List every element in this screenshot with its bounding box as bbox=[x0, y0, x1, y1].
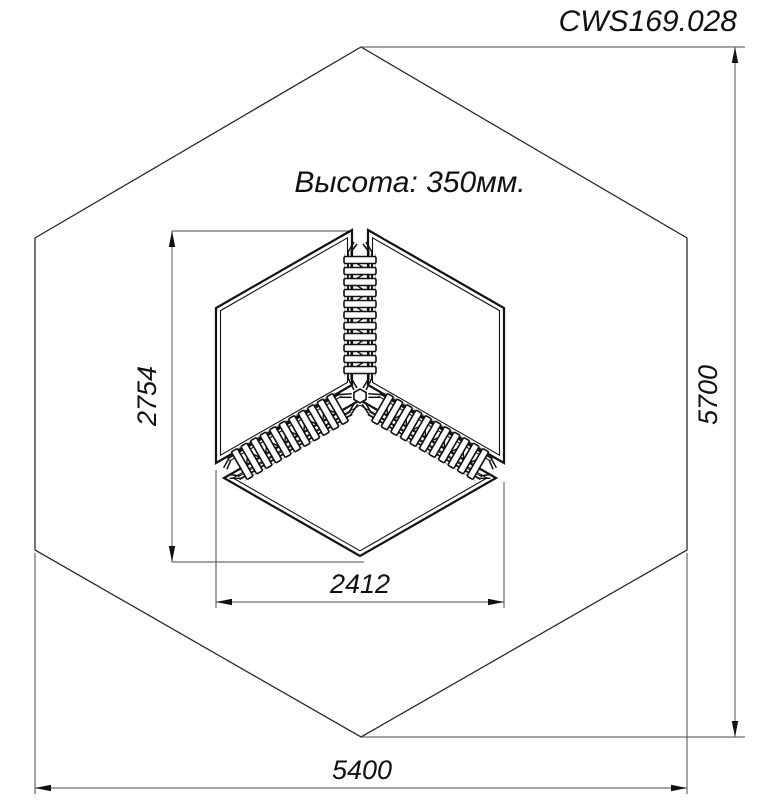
drawing-title: CWS169.028 bbox=[559, 5, 738, 38]
climbing-structure bbox=[216, 230, 504, 556]
panel-inner-edge bbox=[233, 405, 487, 551]
dim-label-site-depth: 5700 bbox=[693, 365, 723, 425]
ladder-lower-right bbox=[357, 385, 501, 487]
ladder-lower-left bbox=[219, 385, 363, 487]
dim-label-structure-depth: 2754 bbox=[132, 366, 162, 427]
height-note: Высота: 350мм. bbox=[294, 166, 525, 199]
dim-label-structure-width: 2412 bbox=[329, 569, 390, 599]
ladder-top bbox=[344, 242, 376, 390]
arrow-down-icon bbox=[732, 721, 738, 737]
center-hub bbox=[354, 389, 366, 403]
arrow-left-icon bbox=[35, 785, 51, 791]
drawing-canvas: CWS169.028 Высота: 350мм. 2754 2412 bbox=[0, 0, 775, 812]
panel-bottom bbox=[224, 400, 496, 556]
arrow-up-icon bbox=[732, 47, 738, 63]
arrow-up-icon bbox=[169, 231, 175, 247]
arrow-down-icon bbox=[169, 546, 175, 562]
dim-label-site-width: 5400 bbox=[332, 755, 392, 785]
arrow-right-icon bbox=[488, 599, 504, 605]
technical-drawing: CWS169.028 Высота: 350мм. 2754 2412 bbox=[0, 0, 775, 812]
dim-structure-width: 2412 bbox=[216, 470, 504, 608]
arrow-right-icon bbox=[671, 785, 687, 791]
arrow-left-icon bbox=[216, 599, 232, 605]
panel-outer-edge bbox=[224, 400, 496, 556]
